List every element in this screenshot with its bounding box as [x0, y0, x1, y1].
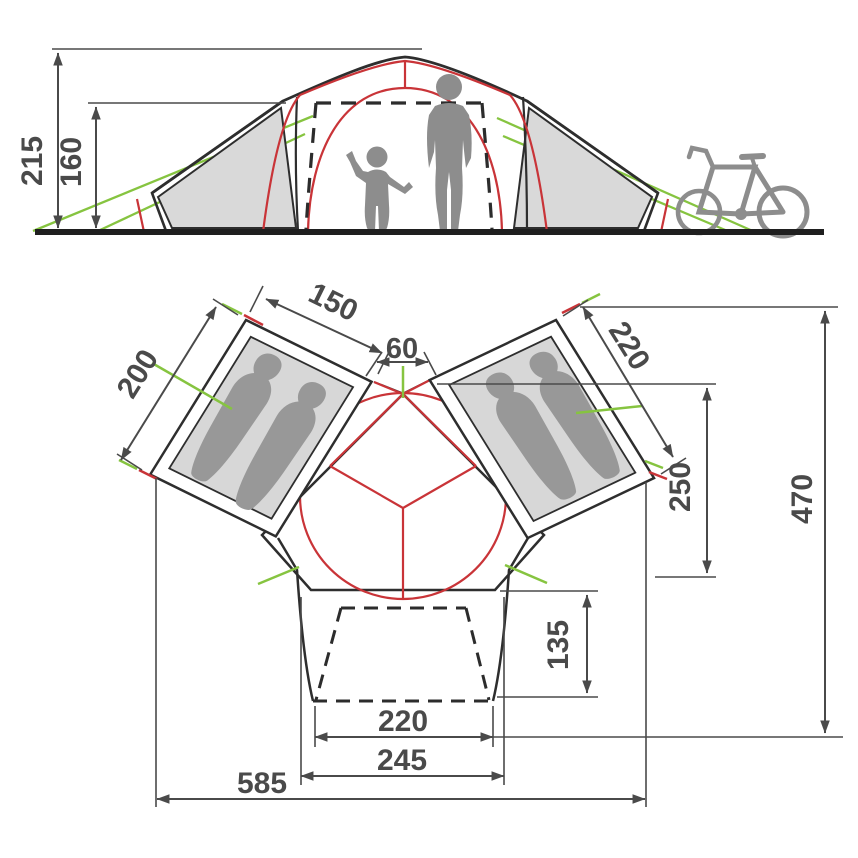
dim-left-cabin-depth: 200 [111, 344, 166, 404]
porch-groundsheet-dashed [313, 608, 492, 701]
inner-tent-right [482, 103, 492, 229]
adult-silhouette [427, 74, 472, 231]
dim-right-cabin-length: 220 [602, 316, 657, 376]
dome-left-edge [296, 97, 298, 231]
side-elevation-view: 215 160 [16, 49, 824, 236]
left-side-panel [158, 108, 296, 228]
bicycle-silhouette [678, 148, 807, 236]
extension-line [424, 352, 436, 375]
child-silhouette [346, 147, 413, 232]
right-side-panel [514, 108, 652, 228]
bicycle-chainring [735, 208, 747, 220]
guy-line [505, 565, 547, 583]
floor-plan-view: 150 200 60 220 250 470 135 220 245 585 [111, 277, 843, 807]
left-sleeping-cabin [150, 320, 371, 536]
inner-tent-left [306, 103, 316, 229]
guy-line [258, 567, 299, 584]
dim-porch-depth: 135 [542, 620, 575, 670]
hub-pole-y [330, 466, 476, 599]
bicycle-seatpost [752, 158, 755, 167]
dim-center-gap: 60 [386, 333, 418, 365]
child-head [367, 147, 388, 168]
dim-total-width: 585 [237, 767, 287, 800]
side-panels [152, 101, 658, 231]
guy-line [222, 304, 242, 314]
bicycle-frame [699, 167, 783, 214]
extension-line [213, 299, 238, 315]
porch-dashed-left [316, 608, 341, 700]
dim-inner-height: 160 [55, 137, 88, 187]
left-peg-line [137, 199, 144, 232]
diagram-svg: 215 160 [0, 0, 858, 858]
dim-total-height: 215 [16, 136, 49, 186]
porch-dashed-right [466, 608, 489, 700]
dim-right-cabin-span: 250 [664, 462, 697, 512]
extension-line [250, 286, 263, 312]
dim-porch-inner-width: 220 [378, 705, 428, 738]
porch-right-wall [493, 538, 528, 701]
bicycle-handlebar [689, 148, 713, 167]
tent-dimension-diagram: 215 160 [0, 0, 858, 858]
adult-body [427, 103, 472, 231]
door-arch-pole [308, 88, 502, 231]
dim-porch-outer-width: 245 [377, 744, 427, 777]
dim-total-depth: 470 [786, 474, 819, 524]
adult-head [436, 74, 462, 100]
porch-left-wall [278, 538, 313, 701]
